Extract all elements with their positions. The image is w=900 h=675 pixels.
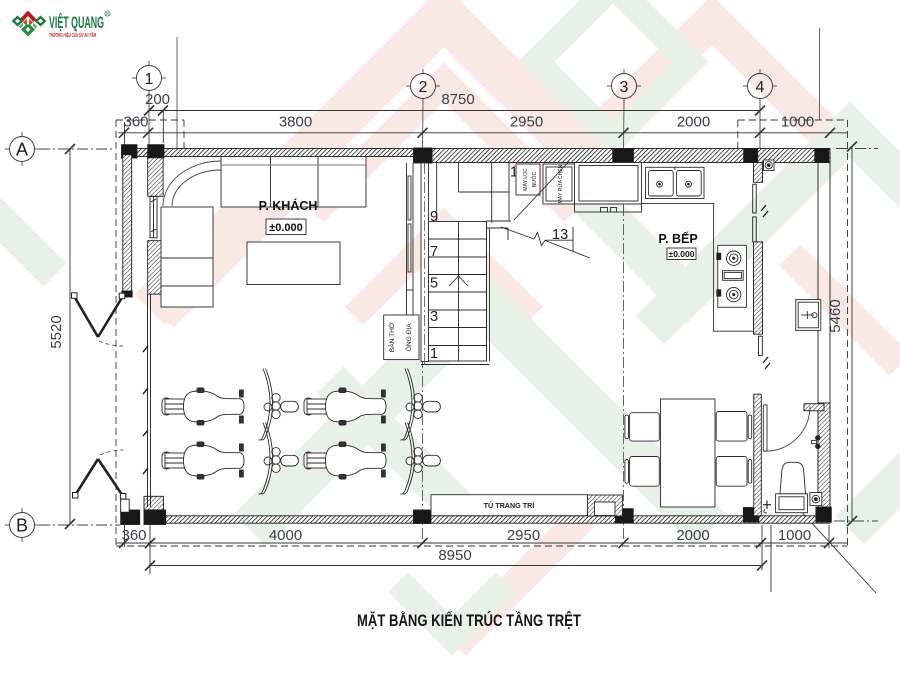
svg-text:1000: 1000 — [778, 527, 811, 544]
svg-text:2: 2 — [419, 79, 428, 96]
svg-text:2950: 2950 — [507, 527, 540, 544]
svg-text:±0.000: ±0.000 — [269, 222, 303, 234]
svg-text:5: 5 — [430, 276, 438, 292]
svg-text:360: 360 — [123, 114, 148, 131]
svg-text:P. KHÁCH: P. KHÁCH — [259, 198, 318, 213]
svg-text:1: 1 — [145, 71, 154, 88]
svg-text:3800: 3800 — [279, 114, 312, 131]
svg-text:1: 1 — [430, 346, 438, 362]
svg-text:ÔNG ĐỊA: ÔNG ĐỊA — [404, 323, 413, 351]
svg-text:1000: 1000 — [781, 114, 814, 131]
svg-text:4: 4 — [756, 79, 765, 96]
svg-text:THƯƠNG HIỆU CỦA SỰ AN TÂM: THƯƠNG HIỆU CỦA SỰ AN TÂM — [49, 31, 96, 39]
svg-text:NƯỚC: NƯỚC — [531, 171, 538, 187]
svg-text:P. BẾP: P. BẾP — [658, 231, 697, 246]
svg-text:MẶT BẰNG KIẾN TRÚC TẦNG TRỆT: MẶT BẰNG KIẾN TRÚC TẦNG TRỆT — [357, 611, 581, 630]
svg-text:13: 13 — [552, 227, 568, 243]
svg-text:TỦ TRANG TRÍ: TỦ TRANG TRÍ — [484, 501, 536, 510]
svg-text:2000: 2000 — [676, 527, 709, 544]
svg-text:8950: 8950 — [438, 547, 471, 564]
svg-text:3: 3 — [620, 79, 629, 96]
svg-text:200: 200 — [145, 91, 170, 108]
svg-text:2000: 2000 — [677, 114, 710, 131]
svg-text:3: 3 — [430, 309, 438, 325]
svg-text:4000: 4000 — [269, 527, 302, 544]
svg-text:7: 7 — [430, 244, 438, 260]
svg-text:5520: 5520 — [48, 315, 65, 348]
svg-text:±0.000: ±0.000 — [669, 249, 695, 259]
svg-text:360: 360 — [121, 527, 146, 544]
svg-text:2950: 2950 — [510, 114, 543, 131]
svg-text:B: B — [16, 516, 28, 536]
svg-text:BÀN THỜ: BÀN THỜ — [387, 322, 396, 352]
svg-text:9: 9 — [430, 209, 438, 225]
svg-text:8750: 8750 — [441, 91, 474, 108]
svg-text:MÁY LỌC: MÁY LỌC — [522, 168, 529, 191]
svg-text:VIỆT QUANG: VIỆT QUANG — [49, 13, 104, 32]
svg-text:A: A — [16, 140, 28, 160]
